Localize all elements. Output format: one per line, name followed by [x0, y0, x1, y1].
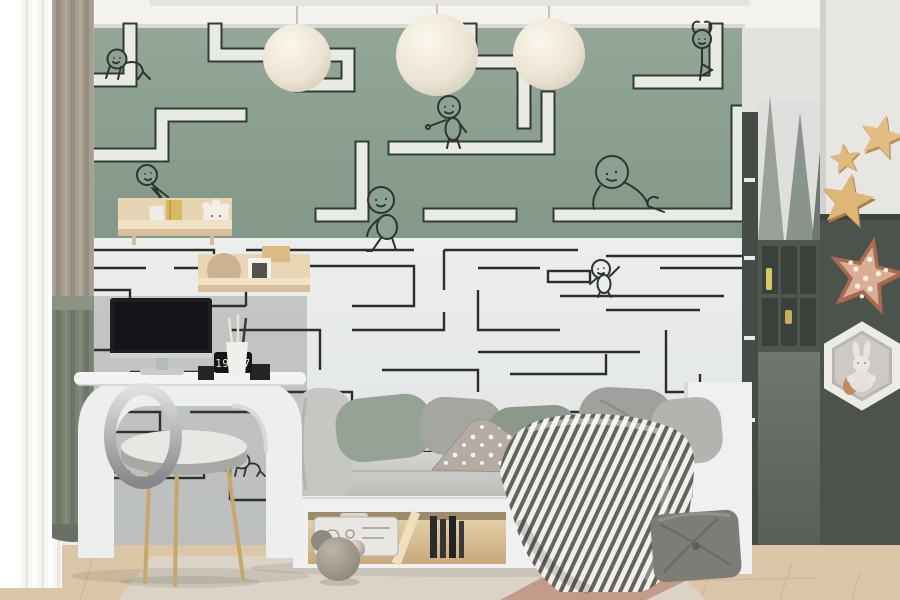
chair-seat	[121, 430, 247, 475]
yellow-bottle	[766, 268, 772, 290]
yellow-jar	[785, 310, 792, 324]
cubby-shelf	[758, 240, 820, 352]
room-scene: 19:07	[0, 0, 900, 600]
storage-cabinet	[742, 28, 820, 590]
hexagon-shelf	[828, 326, 896, 406]
pencil-cup	[226, 314, 248, 376]
wall-right-dark	[820, 0, 900, 600]
daybed	[293, 382, 752, 592]
ball-large	[316, 537, 360, 581]
floor-cushion	[650, 509, 743, 583]
pillow-sage	[333, 391, 435, 465]
castle-pattern	[758, 95, 820, 240]
kids-room-photo: 19:07	[0, 0, 900, 600]
